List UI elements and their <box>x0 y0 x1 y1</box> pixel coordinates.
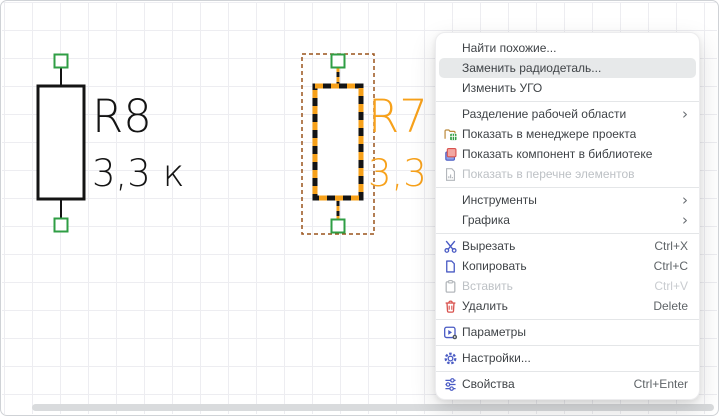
menu-separator <box>436 345 699 346</box>
menu-item-edit-symbol[interactable]: Изменить УГО <box>439 78 696 98</box>
menu-item-icon-cell <box>439 167 462 182</box>
menu-item-find-similar[interactable]: Найти похожие... <box>439 38 696 58</box>
menu-separator <box>436 371 699 372</box>
submenu-chevron-icon: › <box>682 107 688 122</box>
pin-square-bottom[interactable] <box>55 219 68 232</box>
horizontal-scrollbar-thumb[interactable] <box>32 404 714 411</box>
menu-item-delete[interactable]: Удалить Delete <box>439 296 696 316</box>
scissors-icon <box>443 239 458 254</box>
menu-item-icon-cell <box>439 147 462 162</box>
menu-item-tools[interactable]: Инструменты › <box>439 190 696 210</box>
menu-item-shortcut: Ctrl+V <box>654 279 688 293</box>
menu-item-label: Инструменты <box>462 193 537 207</box>
menu-item-copy[interactable]: Копировать Ctrl+C <box>439 256 696 276</box>
menu-item-label: Показать в перечне элементов <box>462 167 635 181</box>
menu-item-label: Показать в менеджере проекта <box>462 127 636 141</box>
value-label[interactable]: 3,3 к <box>92 152 185 195</box>
context-menu: Найти похожие... Заменить радиодеталь...… <box>435 32 700 400</box>
menu-item-shortcut: Delete <box>653 299 688 313</box>
resistor-body[interactable] <box>38 86 84 199</box>
menu-item-label: Изменить УГО <box>462 81 542 95</box>
menu-item-label: Показать компонент в библиотеке <box>462 147 652 161</box>
menu-separator <box>436 101 699 102</box>
menu-item-icon-cell <box>439 279 462 294</box>
menu-item-show-in-project-manager[interactable]: Показать в менеджере проекта <box>439 124 696 144</box>
menu-item-label: Вставить <box>462 279 513 293</box>
menu-item-graphics[interactable]: Графика › <box>439 210 696 230</box>
menu-item-show-in-element-list: Показать в перечне элементов <box>439 164 696 184</box>
paste-icon <box>443 279 458 294</box>
menu-separator <box>436 233 699 234</box>
menu-item-icon-cell <box>439 351 462 366</box>
menu-item-icon-cell <box>439 325 462 340</box>
menu-item-label: Найти похожие... <box>462 41 556 55</box>
menu-item-label: Копировать <box>462 259 527 273</box>
menu-item-label: Удалить <box>462 299 508 313</box>
sliders-icon <box>443 377 458 392</box>
menu-item-settings[interactable]: Настройки... <box>439 348 696 368</box>
menu-item-label: Вырезать <box>462 239 515 253</box>
menu-separator <box>436 187 699 188</box>
pin-square-top[interactable] <box>332 55 345 68</box>
menu-item-label: Настройки... <box>462 351 531 365</box>
submenu-chevron-icon: › <box>682 213 688 228</box>
menu-item-icon-cell <box>439 377 462 392</box>
parameters-icon <box>443 325 458 340</box>
menu-item-cut[interactable]: Вырезать Ctrl+X <box>439 236 696 256</box>
menu-item-replace-component[interactable]: Заменить радиодеталь... <box>439 58 696 78</box>
component-R8[interactable]: R8 3,3 к <box>38 55 185 232</box>
menu-item-properties[interactable]: Свойства Ctrl+Enter <box>439 374 696 394</box>
menu-item-icon-cell <box>439 299 462 314</box>
refdes-label[interactable]: R8 <box>92 90 152 143</box>
menu-item-split-workspace[interactable]: Разделение рабочей области › <box>439 104 696 124</box>
element-list-icon <box>443 167 458 182</box>
menu-item-label: Заменить радиодеталь... <box>462 61 601 75</box>
menu-item-icon-cell <box>439 239 462 254</box>
menu-item-label: Параметры <box>462 325 526 339</box>
pin-square-top[interactable] <box>55 55 68 68</box>
pin-square-bottom[interactable] <box>332 220 345 233</box>
library-icon <box>443 147 458 162</box>
menu-item-icon-cell <box>439 127 462 142</box>
app-window: R8 3,3 к R7 3,3 к Найти похожие... <box>0 0 719 416</box>
copy-icon <box>443 259 458 274</box>
menu-item-paste: Вставить Ctrl+V <box>439 276 696 296</box>
menu-item-parameters[interactable]: Параметры <box>439 322 696 342</box>
settings-gear-icon <box>443 351 458 366</box>
menu-item-shortcut: Ctrl+C <box>654 259 688 273</box>
menu-item-shortcut: Ctrl+Enter <box>634 377 688 391</box>
menu-separator <box>436 319 699 320</box>
project-manager-icon <box>443 127 458 142</box>
menu-item-label: Свойства <box>462 377 515 391</box>
menu-item-show-component-in-library[interactable]: Показать компонент в библиотеке <box>439 144 696 164</box>
trash-icon <box>443 299 458 314</box>
refdes-label[interactable]: R7 <box>368 90 428 143</box>
menu-item-label: Графика <box>462 213 510 227</box>
menu-item-shortcut: Ctrl+X <box>654 239 688 253</box>
menu-item-icon-cell <box>439 259 462 274</box>
menu-item-label: Разделение рабочей области <box>462 107 626 121</box>
submenu-chevron-icon: › <box>682 193 688 208</box>
resistor-body[interactable] <box>315 86 361 198</box>
